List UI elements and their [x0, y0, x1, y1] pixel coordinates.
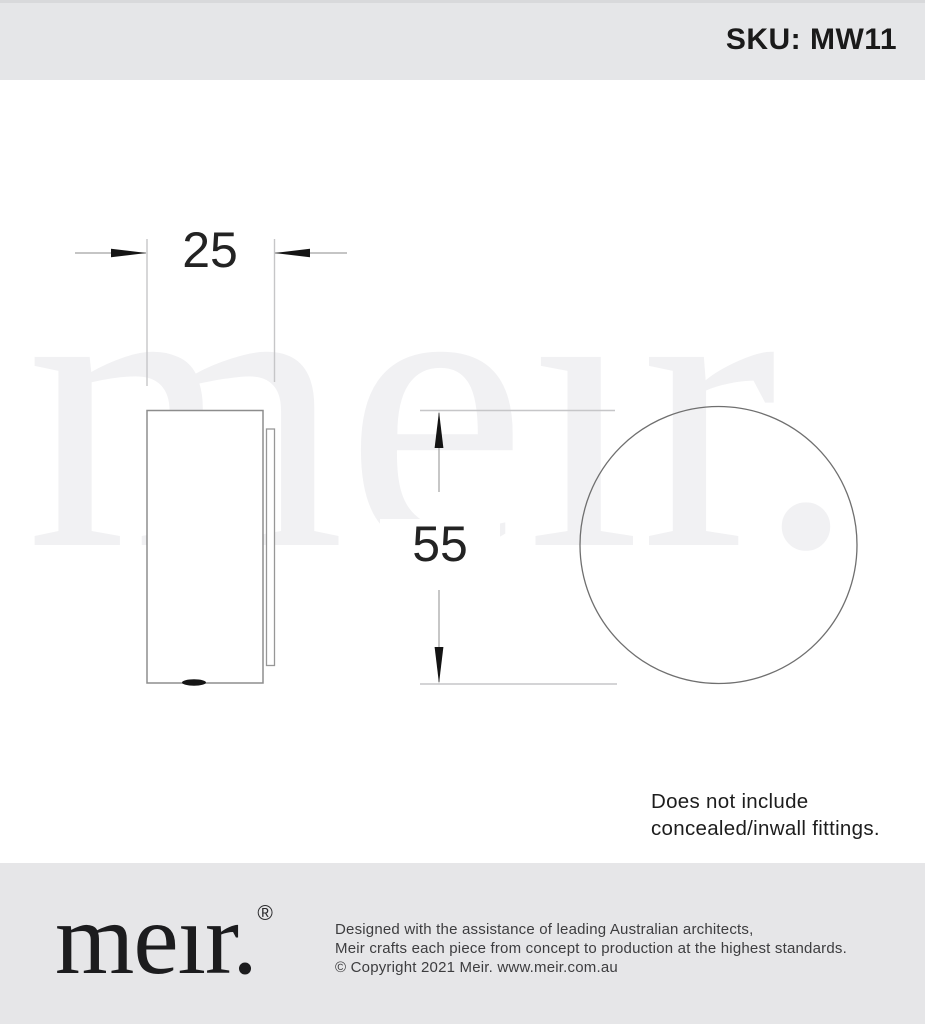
dimension-width-label: 25 — [150, 225, 270, 275]
dimension-height-label: 55 — [380, 519, 500, 569]
footer-line-3: © Copyright 2021 Meir. www.meir.com.au — [335, 958, 847, 977]
footer-bar: meır. ® Designed with the assistance of … — [0, 863, 925, 1024]
arrow-up-icon — [435, 412, 444, 449]
footer-tagline: Designed with the assistance of leading … — [335, 920, 847, 977]
sku-label: SKU: MW11 — [726, 23, 897, 57]
side-view-backplate — [267, 429, 275, 666]
bottom-detail-mark — [182, 679, 206, 685]
fittings-note-line2: concealed/inwall fittings. — [651, 816, 880, 843]
spec-sheet-page: SKU: MW11 meır. 25 55 Does not include c… — [0, 0, 925, 1024]
footer-line-1: Designed with the assistance of leading … — [335, 920, 847, 939]
fittings-note: Does not include concealed/inwall fittin… — [651, 789, 880, 842]
brand-logo: meır. ® — [55, 889, 257, 991]
header-bar: SKU: MW11 — [0, 0, 925, 80]
front-view-circle — [580, 407, 857, 684]
footer-line-2: Meir crafts each piece from concept to p… — [335, 939, 847, 958]
arrow-down-icon — [435, 647, 444, 684]
fittings-note-line1: Does not include — [651, 789, 880, 816]
arrow-right-icon — [111, 249, 147, 258]
brand-logo-text: meır. — [55, 883, 257, 996]
arrow-left-icon — [275, 249, 311, 258]
registered-trademark-icon: ® — [257, 903, 272, 924]
side-view-body — [147, 411, 263, 684]
